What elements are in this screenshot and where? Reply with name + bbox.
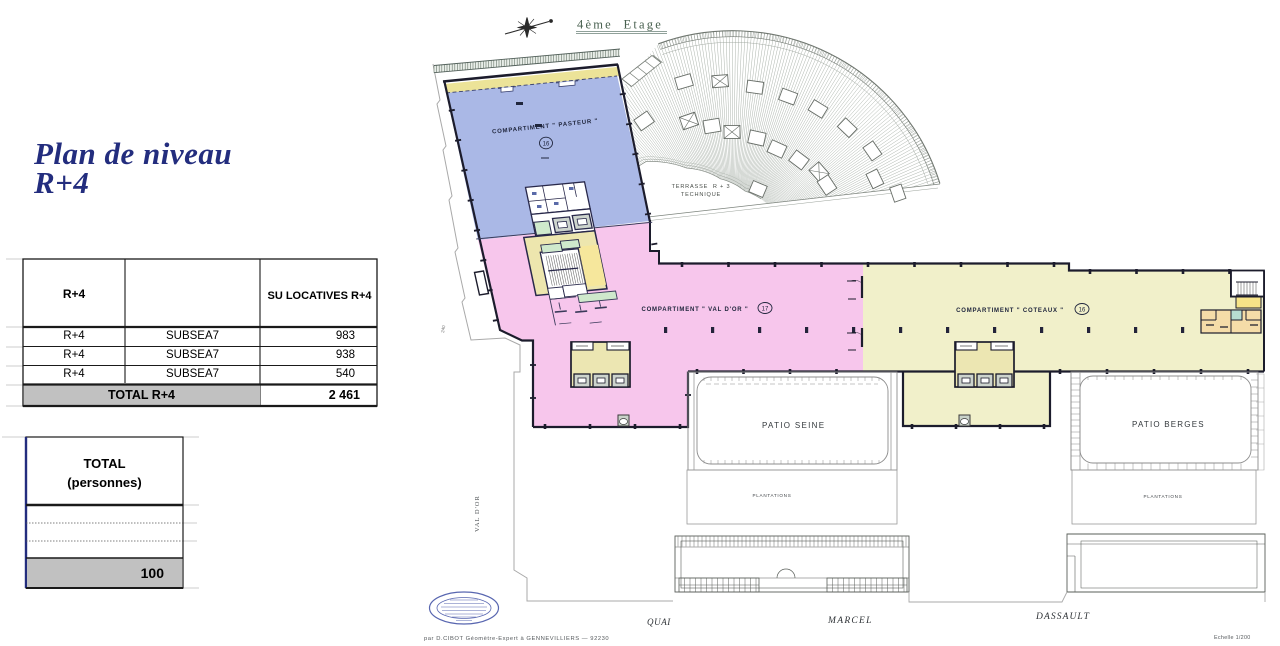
- svg-text:TECHNIQUE: TECHNIQUE: [681, 192, 721, 198]
- svg-text:4ème Etage: 4ème Etage: [577, 18, 663, 32]
- svg-text:PATIO SEINE: PATIO SEINE: [762, 421, 825, 430]
- svg-text:Echelle 1/200: Echelle 1/200: [1214, 635, 1251, 641]
- svg-text:PATIO BERGES: PATIO BERGES: [1132, 420, 1205, 429]
- svg-text:TERRASSE R + 3: TERRASSE R + 3: [672, 184, 731, 190]
- svg-text:DASSAULT: DASSAULT: [1035, 612, 1090, 622]
- svg-text:COMPARTIMENT " VAL D'OR ": COMPARTIMENT " VAL D'OR ": [641, 307, 748, 313]
- svg-text:QUAI: QUAI: [647, 617, 671, 627]
- svg-text:16: 16: [1079, 308, 1086, 314]
- svg-text:PLANTATIONS: PLANTATIONS: [1144, 494, 1183, 499]
- svg-text:par D.CIBOT Géomètre-Expert à: par D.CIBOT Géomètre-Expert à GENNEVILLI…: [424, 636, 609, 642]
- svg-text:MARCEL: MARCEL: [827, 616, 873, 626]
- svg-text:240: 240: [440, 324, 446, 333]
- svg-text:PLANTATIONS: PLANTATIONS: [753, 493, 792, 498]
- svg-text:COMPARTIMENT " COTEAUX ": COMPARTIMENT " COTEAUX ": [956, 308, 1064, 314]
- svg-text:16: 16: [543, 142, 550, 148]
- svg-text:VAL D'OR: VAL D'OR: [474, 495, 481, 532]
- svg-text:17: 17: [762, 307, 769, 313]
